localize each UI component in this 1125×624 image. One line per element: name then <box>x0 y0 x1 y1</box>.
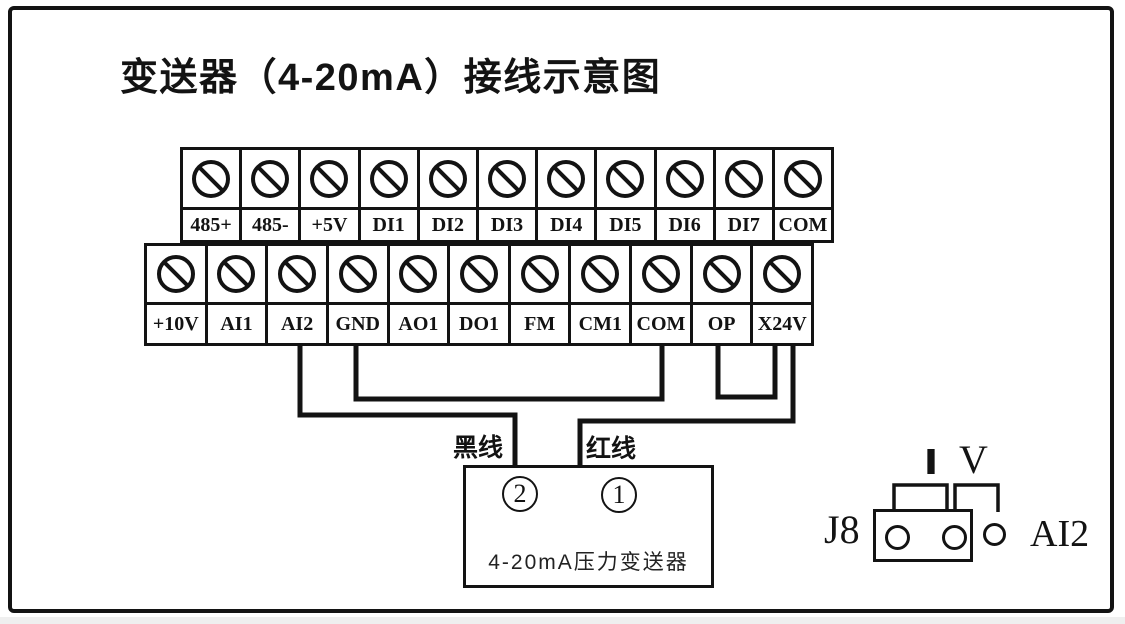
screw-icon <box>521 255 559 293</box>
screw-icon <box>725 160 763 198</box>
screw-icon <box>547 160 585 198</box>
terminal-label: DI1 <box>361 207 417 240</box>
terminal-5v: +5V <box>301 150 360 240</box>
terminal-label: CM1 <box>571 302 629 343</box>
terminal-label: DI5 <box>597 207 653 240</box>
screw-icon <box>192 160 230 198</box>
screw-icon <box>606 160 644 198</box>
screw-icon <box>310 160 348 198</box>
screw-icon <box>763 255 801 293</box>
terminal-di3: DI3 <box>479 150 538 240</box>
terminal-label: GND <box>329 302 387 343</box>
page-edge <box>0 617 1125 624</box>
terminal-di6: DI6 <box>657 150 716 240</box>
transmitter-terminal-1: 1 <box>601 477 637 513</box>
terminal-label: +10V <box>147 302 205 343</box>
terminal-label: DI4 <box>538 207 594 240</box>
terminal-label: COM <box>775 207 831 240</box>
terminal-label: 485+ <box>183 207 239 240</box>
terminal-10v: +10V <box>147 246 208 343</box>
terminal-gnd: GND <box>329 246 390 343</box>
screw-icon <box>666 160 704 198</box>
pressure-transmitter-box: 2 1 4-20mA压力变送器 <box>463 465 714 588</box>
terminal-label: 485- <box>242 207 298 240</box>
terminal-com-top: COM <box>775 150 831 240</box>
terminal-label: AI1 <box>208 302 266 343</box>
terminal-485minus: 485- <box>242 150 301 240</box>
terminal-row-top: 485+ 485- +5V DI1 DI2 DI3 DI4 DI5 DI6 DI… <box>180 147 834 243</box>
screw-icon <box>339 255 377 293</box>
jumper-current-mode-label: I <box>911 441 950 483</box>
screw-icon <box>581 255 619 293</box>
red-wire-label: 红线 <box>586 429 636 465</box>
screw-icon <box>157 255 195 293</box>
transmitter-terminal-2: 2 <box>502 476 538 512</box>
transmitter-name: 4-20mA压力变送器 <box>466 546 711 576</box>
terminal-di1: DI1 <box>361 150 420 240</box>
terminal-485plus: 485+ <box>183 150 242 240</box>
terminal-label: AI2 <box>268 302 326 343</box>
screw-icon <box>399 255 437 293</box>
terminal-label: COM <box>632 302 690 343</box>
terminal-label: AO1 <box>390 302 448 343</box>
terminal-label: OP <box>693 302 751 343</box>
jumper-pin-1-icon <box>885 525 910 550</box>
terminal-label: FM <box>511 302 569 343</box>
jumper-designator: J8 <box>824 506 860 553</box>
terminal-label: DI7 <box>716 207 772 240</box>
terminal-x24v: X24V <box>753 246 811 343</box>
screw-icon <box>784 160 822 198</box>
screw-icon <box>460 255 498 293</box>
terminal-ai2: AI2 <box>268 246 329 343</box>
screw-icon <box>251 160 289 198</box>
jumper-block <box>873 509 973 562</box>
terminal-di5: DI5 <box>597 150 656 240</box>
terminal-do1: DO1 <box>450 246 511 343</box>
screw-icon <box>278 255 316 293</box>
wiring-diagram: 变送器（4-20mA）接线示意图 485+ 485- +5V DI1 DI2 D… <box>0 0 1125 624</box>
terminal-label: DI3 <box>479 207 535 240</box>
jumper-pin-3-icon <box>983 523 1006 546</box>
terminal-label: DO1 <box>450 302 508 343</box>
screw-icon <box>642 255 680 293</box>
screw-icon <box>488 160 526 198</box>
terminal-label: +5V <box>301 207 357 240</box>
terminal-op: OP <box>693 246 754 343</box>
jumper-voltage-mode-label: V <box>959 436 988 483</box>
terminal-label: DI2 <box>420 207 476 240</box>
jumper-channel-label: AI2 <box>1030 512 1089 556</box>
diagram-title: 变送器（4-20mA）接线示意图 <box>120 46 661 101</box>
terminal-row-bottom: +10V AI1 AI2 GND AO1 DO1 FM CM1 COM OP X… <box>144 243 814 346</box>
terminal-ao1: AO1 <box>390 246 451 343</box>
terminal-com-bottom: COM <box>632 246 693 343</box>
terminal-ai1: AI1 <box>208 246 269 343</box>
terminal-label: DI6 <box>657 207 713 240</box>
terminal-di2: DI2 <box>420 150 479 240</box>
terminal-di4: DI4 <box>538 150 597 240</box>
screw-icon <box>703 255 741 293</box>
terminal-cm1: CM1 <box>571 246 632 343</box>
terminal-di7: DI7 <box>716 150 775 240</box>
black-wire-label: 黑线 <box>453 428 503 464</box>
screw-icon <box>370 160 408 198</box>
jumper-pin-2-icon <box>942 525 967 550</box>
terminal-label: X24V <box>753 302 811 343</box>
screw-icon <box>429 160 467 198</box>
terminal-fm: FM <box>511 246 572 343</box>
screw-icon <box>217 255 255 293</box>
